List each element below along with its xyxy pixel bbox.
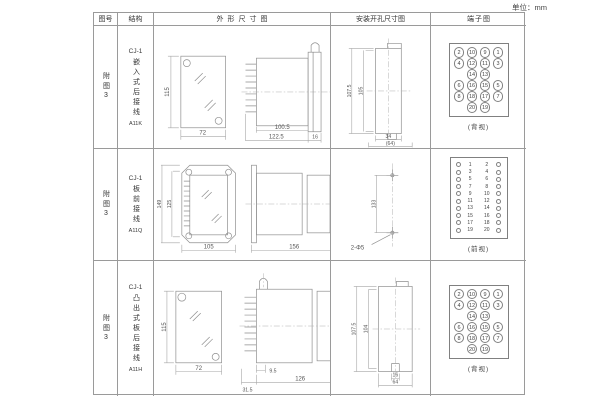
terminal-circle: 17 — [480, 91, 491, 102]
terminal-number: 10 — [480, 191, 494, 197]
terminal-circle: 16 — [467, 322, 478, 333]
outline-diagram-a11q: 149 125 105 156 115 — [154, 149, 331, 261]
model-label: CJ-1 — [129, 175, 143, 182]
terminal-grid-rear: 2 10 9 1 4 12 11 3 14 13 6 16 15 5 8 18 — [453, 47, 505, 113]
cutout-drawing-a11q: 133 2-Φ5 — [331, 149, 430, 261]
terminal-block: 2 10 9 1 4 12 11 3 14 13 6 16 15 5 8 18 — [449, 285, 509, 359]
dim-label-stud: 31.5 — [242, 388, 252, 394]
terminal-circle: 3 — [493, 300, 504, 311]
terminal-grid-rear: 2 10 9 1 4 12 11 3 14 13 6 16 15 5 8 18 — [453, 289, 505, 355]
terminal-circle — [496, 228, 501, 233]
fig-no-label: 附图3 — [101, 190, 111, 220]
dim-label-cutout-h1: 107.5 — [347, 84, 353, 97]
terminal-circle — [496, 184, 501, 189]
dim-label-cutout-w: 64 — [392, 379, 398, 385]
terminal-number: 2 — [480, 162, 494, 168]
cutout-diagram-a11h: 107.5 104 16 64 — [331, 261, 431, 396]
dim-label-cutout-h2: 105 — [359, 86, 365, 95]
dim-label-height: 115 — [162, 322, 168, 332]
dim-label-cutout-w1: 34 — [386, 133, 392, 139]
terminal-circle: 14 — [467, 311, 478, 322]
column-header-fig-no: 图号 — [94, 13, 118, 26]
terminal-circle: 18 — [467, 333, 478, 344]
terminal-circle: 16 — [467, 80, 478, 91]
terminal-circle: 12 — [467, 300, 478, 311]
terminal-circle: 7 — [493, 91, 504, 102]
terminal-circle: 9 — [480, 289, 491, 300]
dim-label-depth: 156 — [289, 244, 300, 250]
structure-cell-a11q: CJ-1 板前接线 A11Q — [118, 149, 154, 261]
terminal-number: 1 — [463, 162, 477, 168]
terminal-pair-row: 12 — [456, 162, 502, 169]
outline-drawing-a11h: 115 72 9.5 31.5 126 — [154, 261, 330, 396]
document-page: 单位：mm 图号 结构 外形尺寸图 安装开孔尺寸图 端子图 附图3 CJ-1 嵌… — [0, 0, 600, 400]
fig-no-label: 附图3 — [101, 314, 111, 344]
terminal-circle — [496, 170, 501, 175]
terminal-block: 12 34 56 78 910 1112 1314 1516 1718 1920 — [450, 157, 508, 239]
dim-label-front: 9.5 — [269, 369, 276, 375]
fig-no-label: 附图3 — [101, 72, 111, 102]
terminal-number: 15 — [463, 213, 477, 219]
type-code-label: A11H — [129, 367, 142, 373]
terminal-circle: 2 — [454, 47, 465, 58]
dim-label-cutout-w2: (64) — [386, 140, 395, 146]
terminal-number: 11 — [463, 198, 477, 204]
terminal-block: 2 10 9 1 4 12 11 3 14 13 6 16 15 5 8 18 — [449, 43, 509, 117]
column-header-outline: 外形尺寸图 — [154, 13, 331, 26]
terminal-number: 16 — [480, 213, 494, 219]
terminal-circle — [496, 177, 501, 182]
cutout-diagram-a11k: 107.5 105 34 (64) — [331, 26, 431, 149]
terminal-circle — [456, 162, 461, 167]
terminal-circle — [496, 191, 501, 196]
terminal-circle: 17 — [480, 333, 491, 344]
terminal-circle: 6 — [454, 322, 465, 333]
type-code-label: A11Q — [129, 228, 143, 234]
terminal-circle — [496, 199, 501, 204]
terminal-circle: 1 — [493, 47, 504, 58]
fig-no-cell-a11q: 附图3 — [94, 149, 118, 261]
terminal-diagram-a11k: 2 10 9 1 4 12 11 3 14 13 6 16 15 5 8 18 — [431, 26, 526, 149]
terminal-circle: 4 — [454, 58, 465, 69]
fig-no-cell-a11h: 附图3 — [94, 261, 118, 396]
terminal-circle — [496, 213, 501, 218]
dim-label-height: 115 — [165, 86, 171, 96]
terminal-pair-row: 910 — [456, 191, 502, 198]
hole-spec-label: 2-Φ5 — [351, 245, 365, 251]
dim-label-width: 72 — [195, 366, 202, 372]
column-header-terminal: 端子图 — [431, 13, 526, 26]
terminal-circle: 8 — [454, 91, 465, 102]
terminal-circle: 14 — [467, 69, 478, 80]
terminal-number: 7 — [463, 184, 477, 190]
terminal-diagram-a11q: 12 34 56 78 910 1112 1314 1516 1718 1920… — [431, 149, 526, 261]
dim-label-inner-h: 125 — [167, 199, 173, 208]
terminal-number: 6 — [480, 176, 494, 182]
outline-diagram-a11h: 115 72 9.5 31.5 126 — [154, 261, 331, 396]
dim-label-cutout-h2: 104 — [364, 325, 370, 334]
terminal-circle — [456, 199, 461, 204]
terminal-pair-row: 56 — [456, 176, 502, 183]
dim-label-flange: 16 — [312, 134, 318, 140]
terminal-circle — [456, 228, 461, 233]
terminal-number: 4 — [480, 169, 494, 175]
terminal-circle: 3 — [493, 58, 504, 69]
dim-label-width: 72 — [199, 130, 206, 136]
cutout-diagram-a11q: 133 2-Φ5 — [331, 149, 431, 261]
terminal-number: 5 — [463, 176, 477, 182]
terminal-circle: 13 — [480, 69, 491, 80]
terminal-circle — [456, 206, 461, 211]
column-header-structure: 结构 — [118, 13, 154, 26]
outline-diagram-a11k: 115 72 100.5 122.5 16 — [154, 26, 331, 149]
spec-table: 图号 结构 外形尺寸图 安装开孔尺寸图 端子图 附图3 CJ-1 嵌入式后接线 … — [93, 12, 525, 395]
terminal-pair-row: 1718 — [456, 220, 502, 227]
terminal-circle: 18 — [467, 91, 478, 102]
terminal-circle — [456, 170, 461, 175]
terminal-circle: 9 — [480, 47, 491, 58]
terminal-pair-row: 34 — [456, 169, 502, 176]
terminal-circle — [456, 220, 461, 225]
wiring-type-label: 嵌入式后接线 — [131, 58, 141, 118]
terminal-circle: 2 — [454, 289, 465, 300]
terminal-pair-row: 1516 — [456, 212, 502, 219]
terminal-circle: 11 — [480, 300, 491, 311]
terminal-circle: 5 — [493, 322, 504, 333]
terminal-number: 19 — [463, 227, 477, 233]
terminal-number: 3 — [463, 169, 477, 175]
dim-label-slot-w: 16 — [392, 373, 398, 379]
type-code-label: A11K — [129, 121, 142, 127]
terminal-pair-row: 1314 — [456, 205, 502, 212]
terminal-number: 18 — [480, 220, 494, 226]
terminal-number: 20 — [480, 227, 494, 233]
terminal-circle: 7 — [493, 333, 504, 344]
terminal-circle: 11 — [480, 58, 491, 69]
dim-label-depth2: 122.5 — [269, 134, 285, 140]
terminal-circle: 12 — [467, 58, 478, 69]
terminal-circle: 19 — [480, 102, 491, 113]
terminal-circle — [496, 206, 501, 211]
terminal-number: 13 — [463, 205, 477, 211]
structure-cell-a11k: CJ-1 嵌入式后接线 A11K — [118, 26, 154, 149]
terminal-circle: 15 — [480, 322, 491, 333]
dim-label-cutout-h1: 107.5 — [352, 322, 358, 335]
terminal-pair-row: 78 — [456, 183, 502, 190]
terminal-circle: 20 — [467, 344, 478, 355]
terminal-circle: 8 — [454, 333, 465, 344]
wiring-type-label: 板前接线 — [131, 185, 141, 225]
terminal-number: 14 — [480, 205, 494, 211]
structure-cell-a11h: CJ-1 凸出式板后接线 A11H — [118, 261, 154, 396]
fig-no-cell-a11k: 附图3 — [94, 26, 118, 149]
model-label: CJ-1 — [129, 284, 143, 291]
wiring-type-label: 凸出式板后接线 — [131, 294, 141, 364]
terminal-circle: 6 — [454, 80, 465, 91]
terminal-pair-row: 1920 — [456, 227, 502, 234]
dim-label-width: 105 — [204, 244, 215, 250]
terminal-number: 8 — [480, 184, 494, 190]
terminal-circle — [456, 213, 461, 218]
column-header-cutout: 安装开孔尺寸图 — [331, 13, 431, 26]
terminal-circle: 5 — [493, 80, 504, 91]
terminal-circle — [456, 191, 461, 196]
terminal-circle: 1 — [493, 289, 504, 300]
terminal-circle — [456, 184, 461, 189]
terminal-circle — [496, 162, 501, 167]
terminal-circle: 20 — [467, 102, 478, 113]
terminal-circle: 19 — [480, 344, 491, 355]
terminal-circle: 13 — [480, 311, 491, 322]
dim-label-depth: 126 — [295, 377, 306, 383]
terminal-circle: 10 — [467, 47, 478, 58]
terminal-view-caption: (背视) — [468, 121, 489, 131]
terminal-diagram-a11h: 2 10 9 1 4 12 11 3 14 13 6 16 15 5 8 18 — [431, 261, 526, 396]
cutout-drawing-a11k: 107.5 105 34 (64) — [331, 26, 430, 149]
terminal-circle: 4 — [454, 300, 465, 311]
terminal-pair-row: 1112 — [456, 198, 502, 205]
terminal-circle — [456, 177, 461, 182]
dim-label-depth1: 100.5 — [275, 124, 291, 130]
model-label: CJ-1 — [129, 48, 143, 55]
cutout-drawing-a11h: 107.5 104 16 64 — [331, 261, 430, 396]
outline-drawing-a11q: 149 125 105 156 115 — [154, 149, 330, 261]
terminal-number: 12 — [480, 198, 494, 204]
terminal-circle: 15 — [480, 80, 491, 91]
terminal-circle — [496, 220, 501, 225]
dim-label-outer-h: 149 — [157, 199, 163, 208]
terminal-number: 17 — [463, 220, 477, 226]
terminal-view-caption: (前视) — [468, 243, 489, 253]
terminal-circle: 10 — [467, 289, 478, 300]
terminal-number: 9 — [463, 191, 477, 197]
dim-label-hole-spacing: 133 — [372, 199, 378, 208]
terminal-view-caption: (背视) — [468, 363, 489, 373]
outline-drawing-a11k: 115 72 100.5 122.5 16 — [154, 26, 330, 149]
